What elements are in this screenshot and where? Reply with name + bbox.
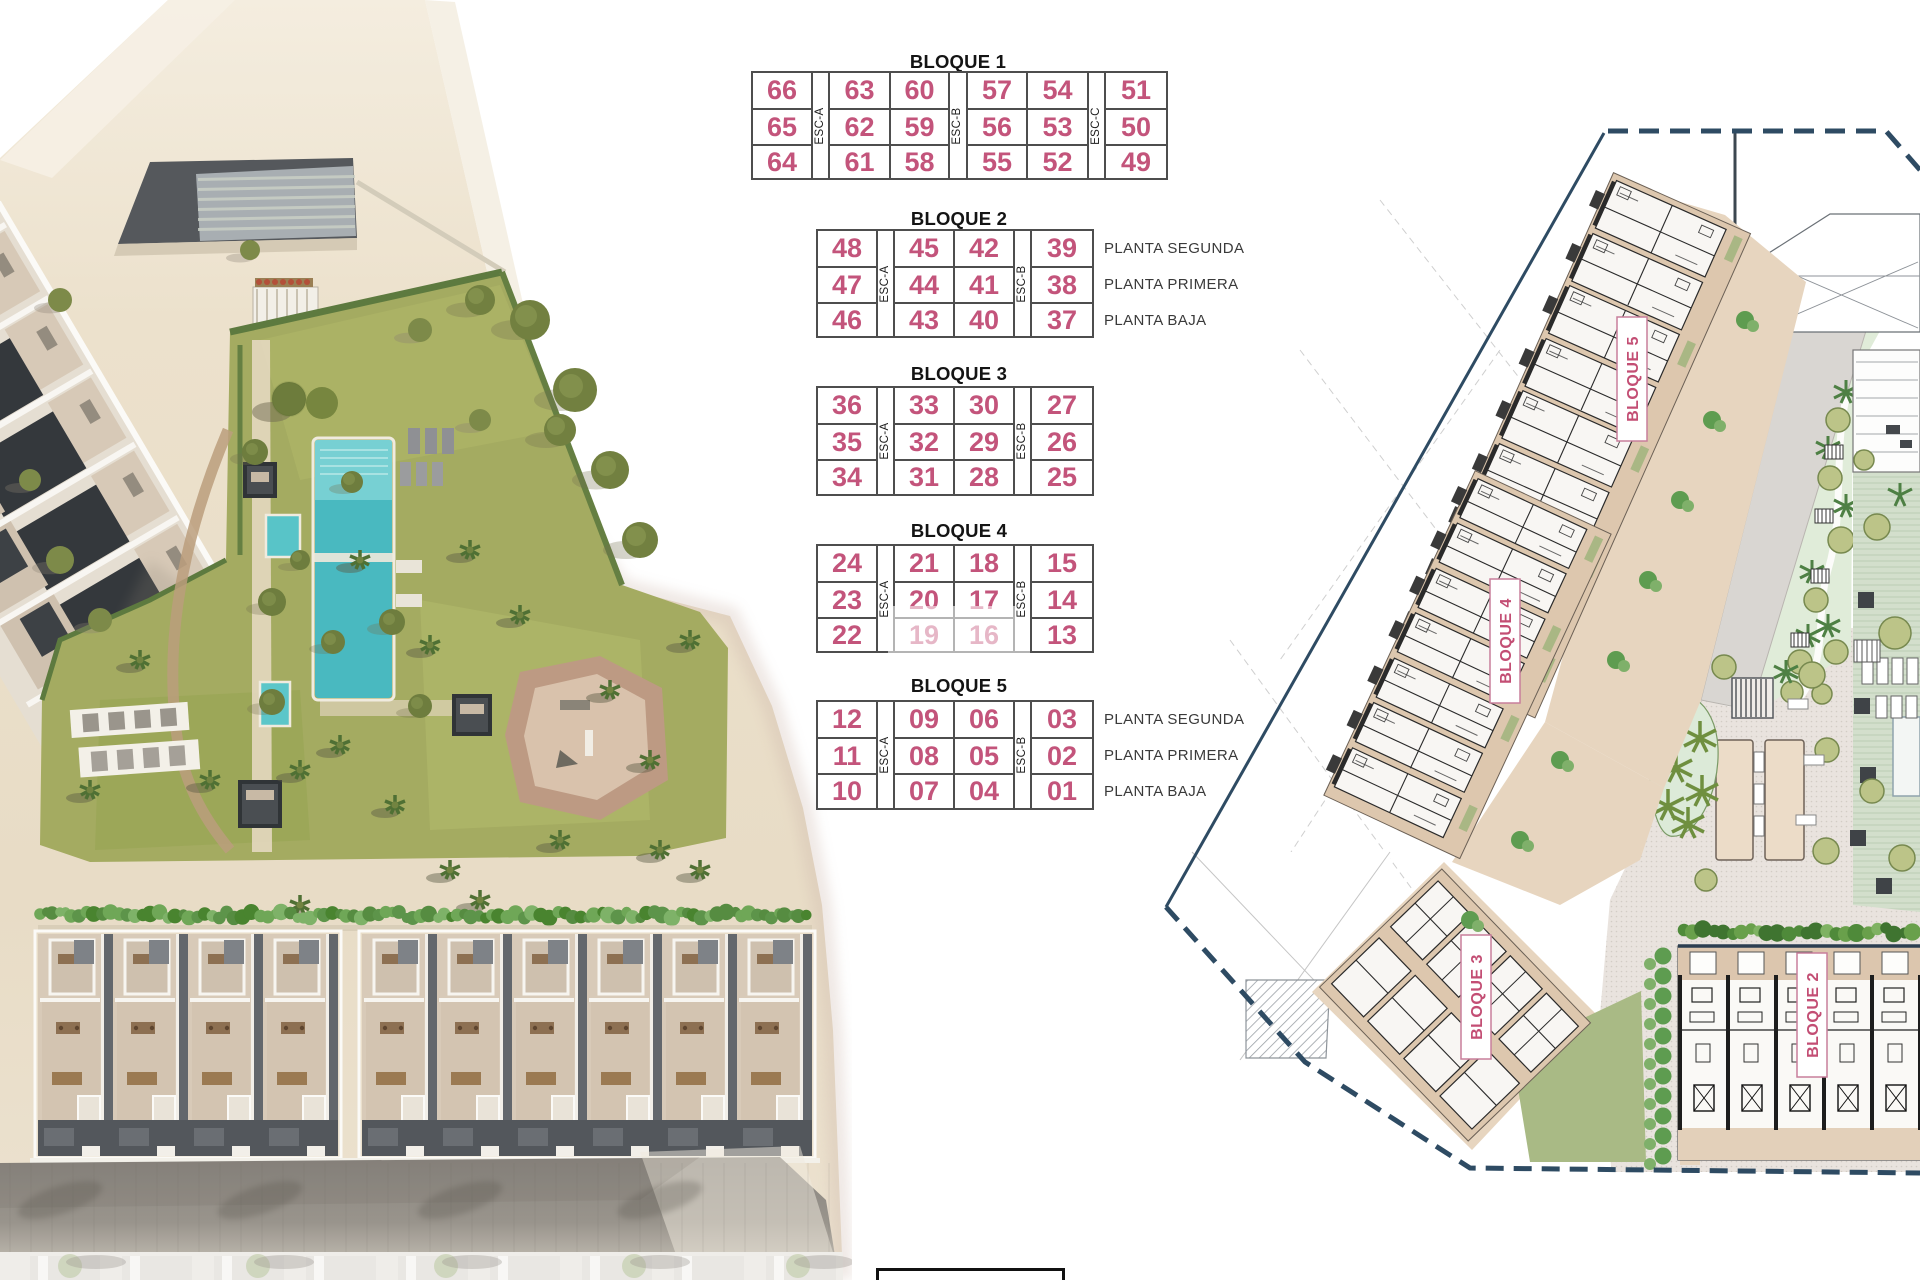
svg-text:BLOQUE 5: BLOQUE 5 <box>1625 336 1642 422</box>
svg-text:BLOQUE 4: BLOQUE 4 <box>1498 598 1515 684</box>
svg-text:BLOQUE 3: BLOQUE 3 <box>1469 954 1486 1040</box>
svg-text:BLOQUE 2: BLOQUE 2 <box>1805 972 1822 1058</box>
